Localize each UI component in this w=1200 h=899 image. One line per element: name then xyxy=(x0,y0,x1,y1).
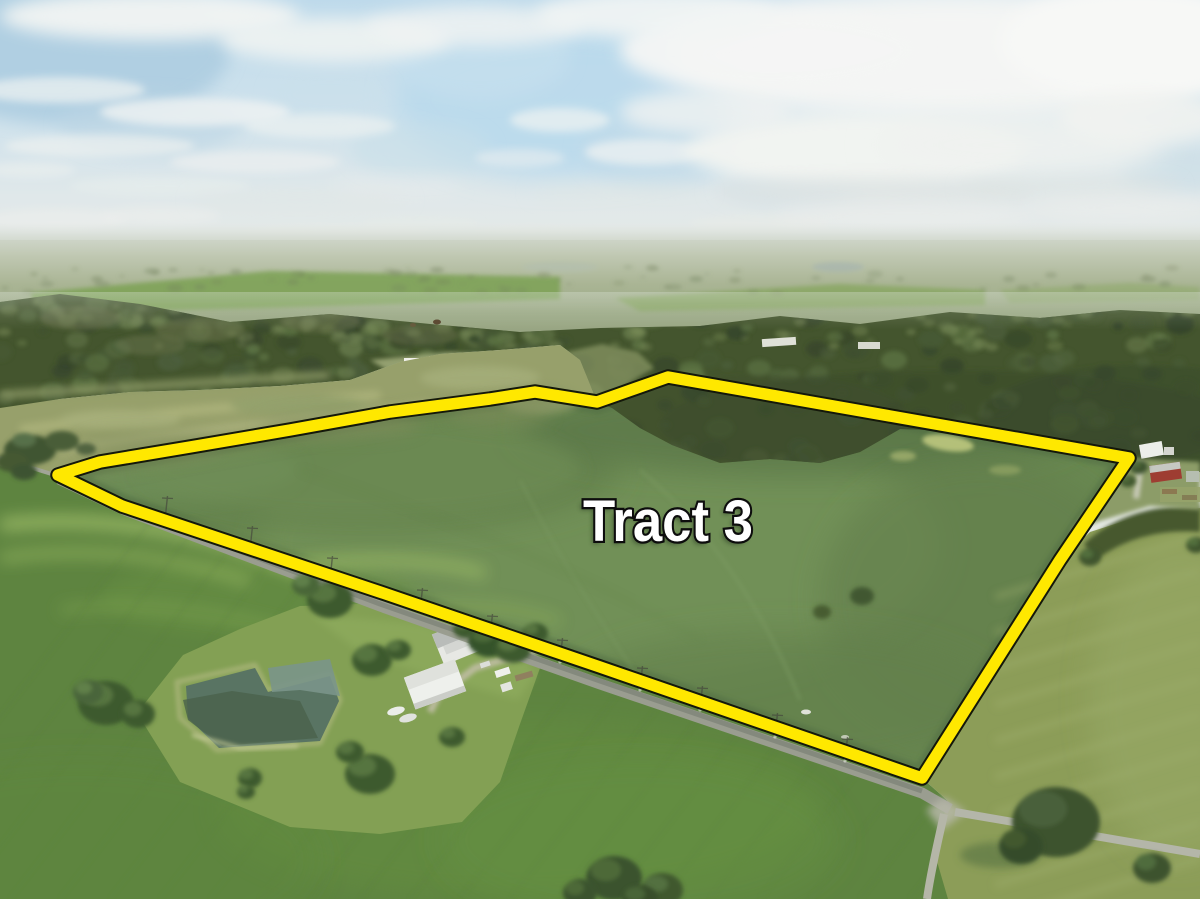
svg-text:Tract 3: Tract 3 xyxy=(583,489,753,554)
